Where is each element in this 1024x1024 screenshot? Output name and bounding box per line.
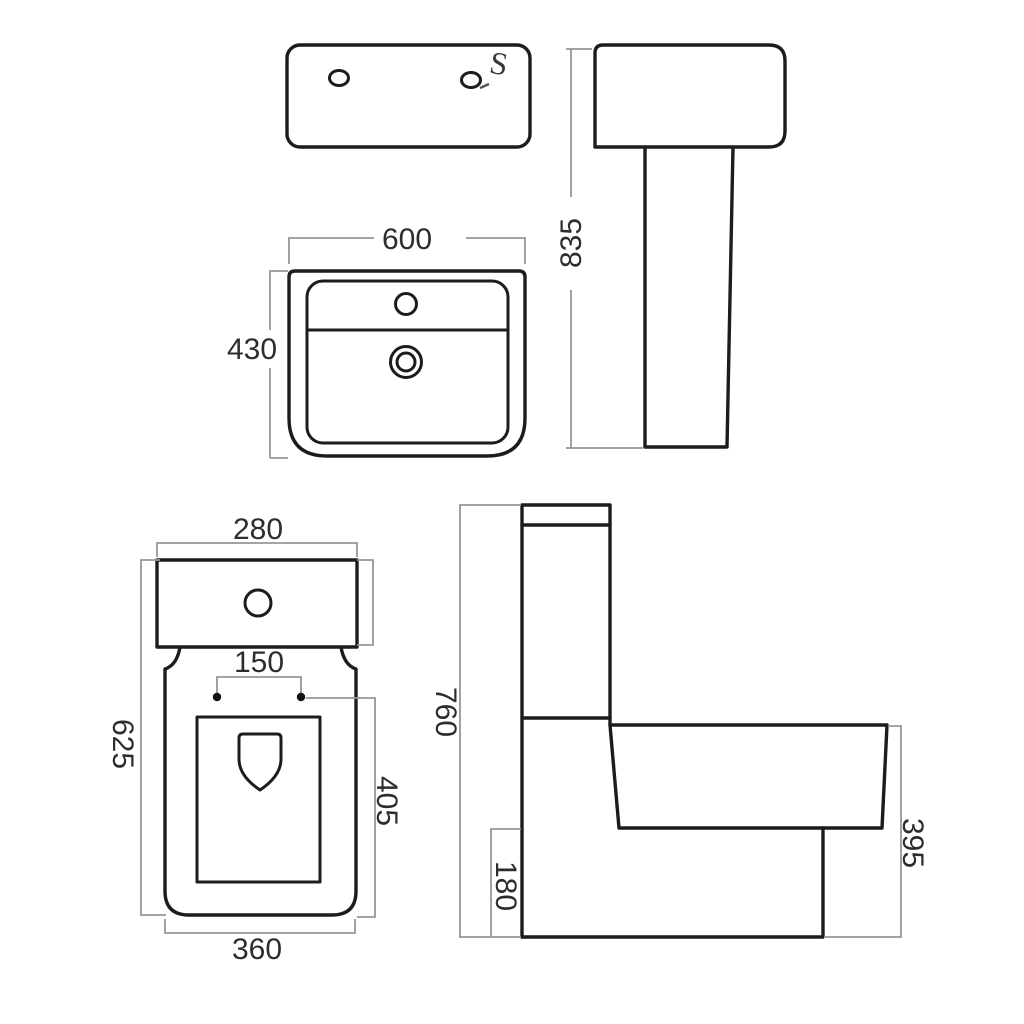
dim-label-hinge-spacing: 150 — [234, 646, 284, 679]
dim-label-pedestal-height: 835 — [555, 218, 588, 268]
dim-label-seat-height: 395 — [896, 818, 929, 868]
cistern-side-bracket — [357, 560, 373, 645]
basin-front-outline — [289, 271, 525, 456]
cistern-side-outline — [522, 505, 610, 937]
basin-left-hole — [330, 71, 349, 86]
cistern-plan-outline — [157, 560, 357, 647]
basin-side-outline — [595, 45, 785, 147]
dim-label-toilet-depth: 625 — [106, 719, 139, 769]
base-and-floor-line — [522, 828, 823, 937]
basin-bowl-outline — [307, 281, 508, 443]
dim-line-150 — [217, 677, 301, 694]
dim-line-395 — [824, 726, 901, 937]
tap-hole — [396, 294, 417, 315]
bowl-side-outline — [610, 725, 887, 828]
dim-label-cistern-width: 280 — [233, 513, 283, 546]
basin-pedestal-side-view: 835 — [555, 45, 785, 448]
hinge-hole-left — [213, 693, 221, 701]
seat-outline — [197, 717, 320, 882]
dim-label-basin-height: 430 — [227, 333, 277, 366]
dim-label-basin-width: 600 — [382, 223, 432, 256]
technical-drawing-canvas: S 600 430 835 280 625 150 — [0, 0, 1024, 1024]
technical-drawing-page: S 600 430 835 280 625 150 — [0, 0, 1024, 1024]
drain-outer-ring — [391, 347, 422, 378]
bowl-water-outline — [239, 734, 281, 790]
pan-plan-outline — [165, 647, 356, 915]
basin-top-view: S — [287, 44, 530, 147]
drain-inner-ring — [397, 353, 415, 371]
dim-label-seat-depth: 405 — [370, 776, 403, 826]
screw-leader-line — [480, 84, 489, 88]
hinge-hole-right — [297, 693, 305, 701]
dim-line-405 — [306, 698, 375, 917]
flush-button — [245, 590, 271, 616]
basin-right-hole — [462, 73, 481, 88]
screw-icon: S — [487, 44, 511, 83]
dim-label-toilet-height: 760 — [429, 687, 462, 737]
dim-label-pan-width: 360 — [232, 933, 282, 966]
toilet-side-view: 760 180 395 — [429, 505, 929, 937]
toilet-plan-view: 280 625 150 405 360 — [106, 513, 403, 966]
dim-label-base-height: 180 — [489, 861, 522, 911]
dim-line-625 — [141, 560, 166, 915]
dim-line-360 — [165, 919, 355, 933]
basin-front-view: 600 430 — [227, 223, 525, 458]
pedestal-outline — [645, 147, 733, 447]
